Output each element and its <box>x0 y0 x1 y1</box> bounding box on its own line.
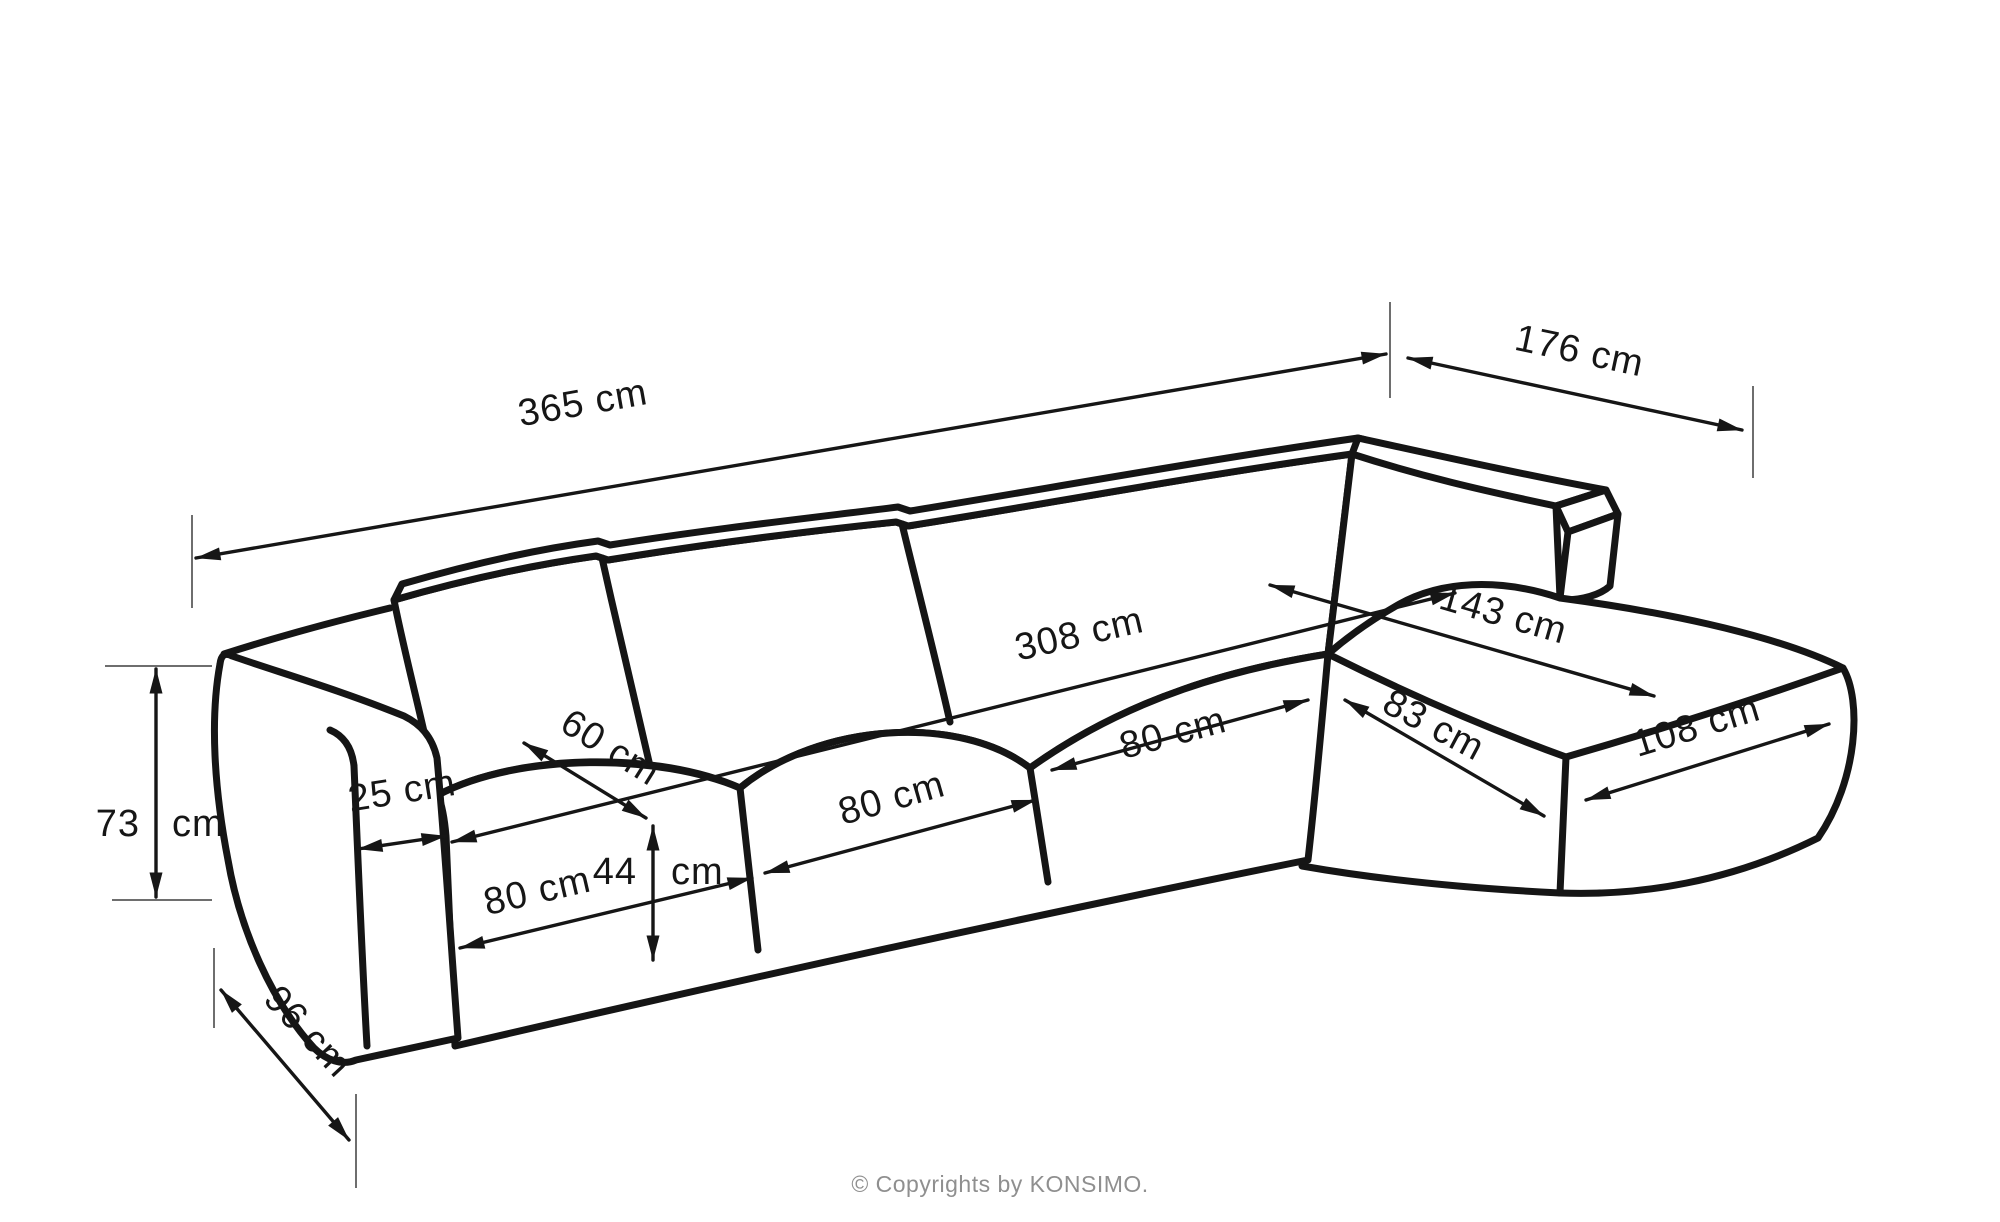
copyright-text: © Copyrights by KONSIMO. <box>851 1171 1148 1197</box>
dimension-label-overall-width: 365 cm <box>515 371 651 435</box>
diagram-canvas: 365 cm 176 cm 308 cm 143 cm 60 cm 25 cm … <box>0 0 2000 1222</box>
chaise-body <box>1302 585 1854 894</box>
dimension-label-seat-height-unit: cm <box>671 851 724 893</box>
dimension-label-overall-height-unit: cm <box>172 803 225 845</box>
dimension-label-seat-height-num: 44 <box>593 851 637 893</box>
dimension-label-chaise-side-width: 176 cm <box>1511 317 1648 385</box>
dimension-overall-height: 73 cm <box>96 669 225 897</box>
dimension-label-overall-height-num: 73 <box>96 803 140 845</box>
left-armrest-top-back-edge <box>224 608 390 654</box>
dimension-chaise-side-width: 176 cm <box>1408 317 1742 430</box>
sofa-drawing <box>214 438 1854 1062</box>
sofa-dimension-diagram: 365 cm 176 cm 308 cm 143 cm 60 cm 25 cm … <box>0 0 2000 1222</box>
